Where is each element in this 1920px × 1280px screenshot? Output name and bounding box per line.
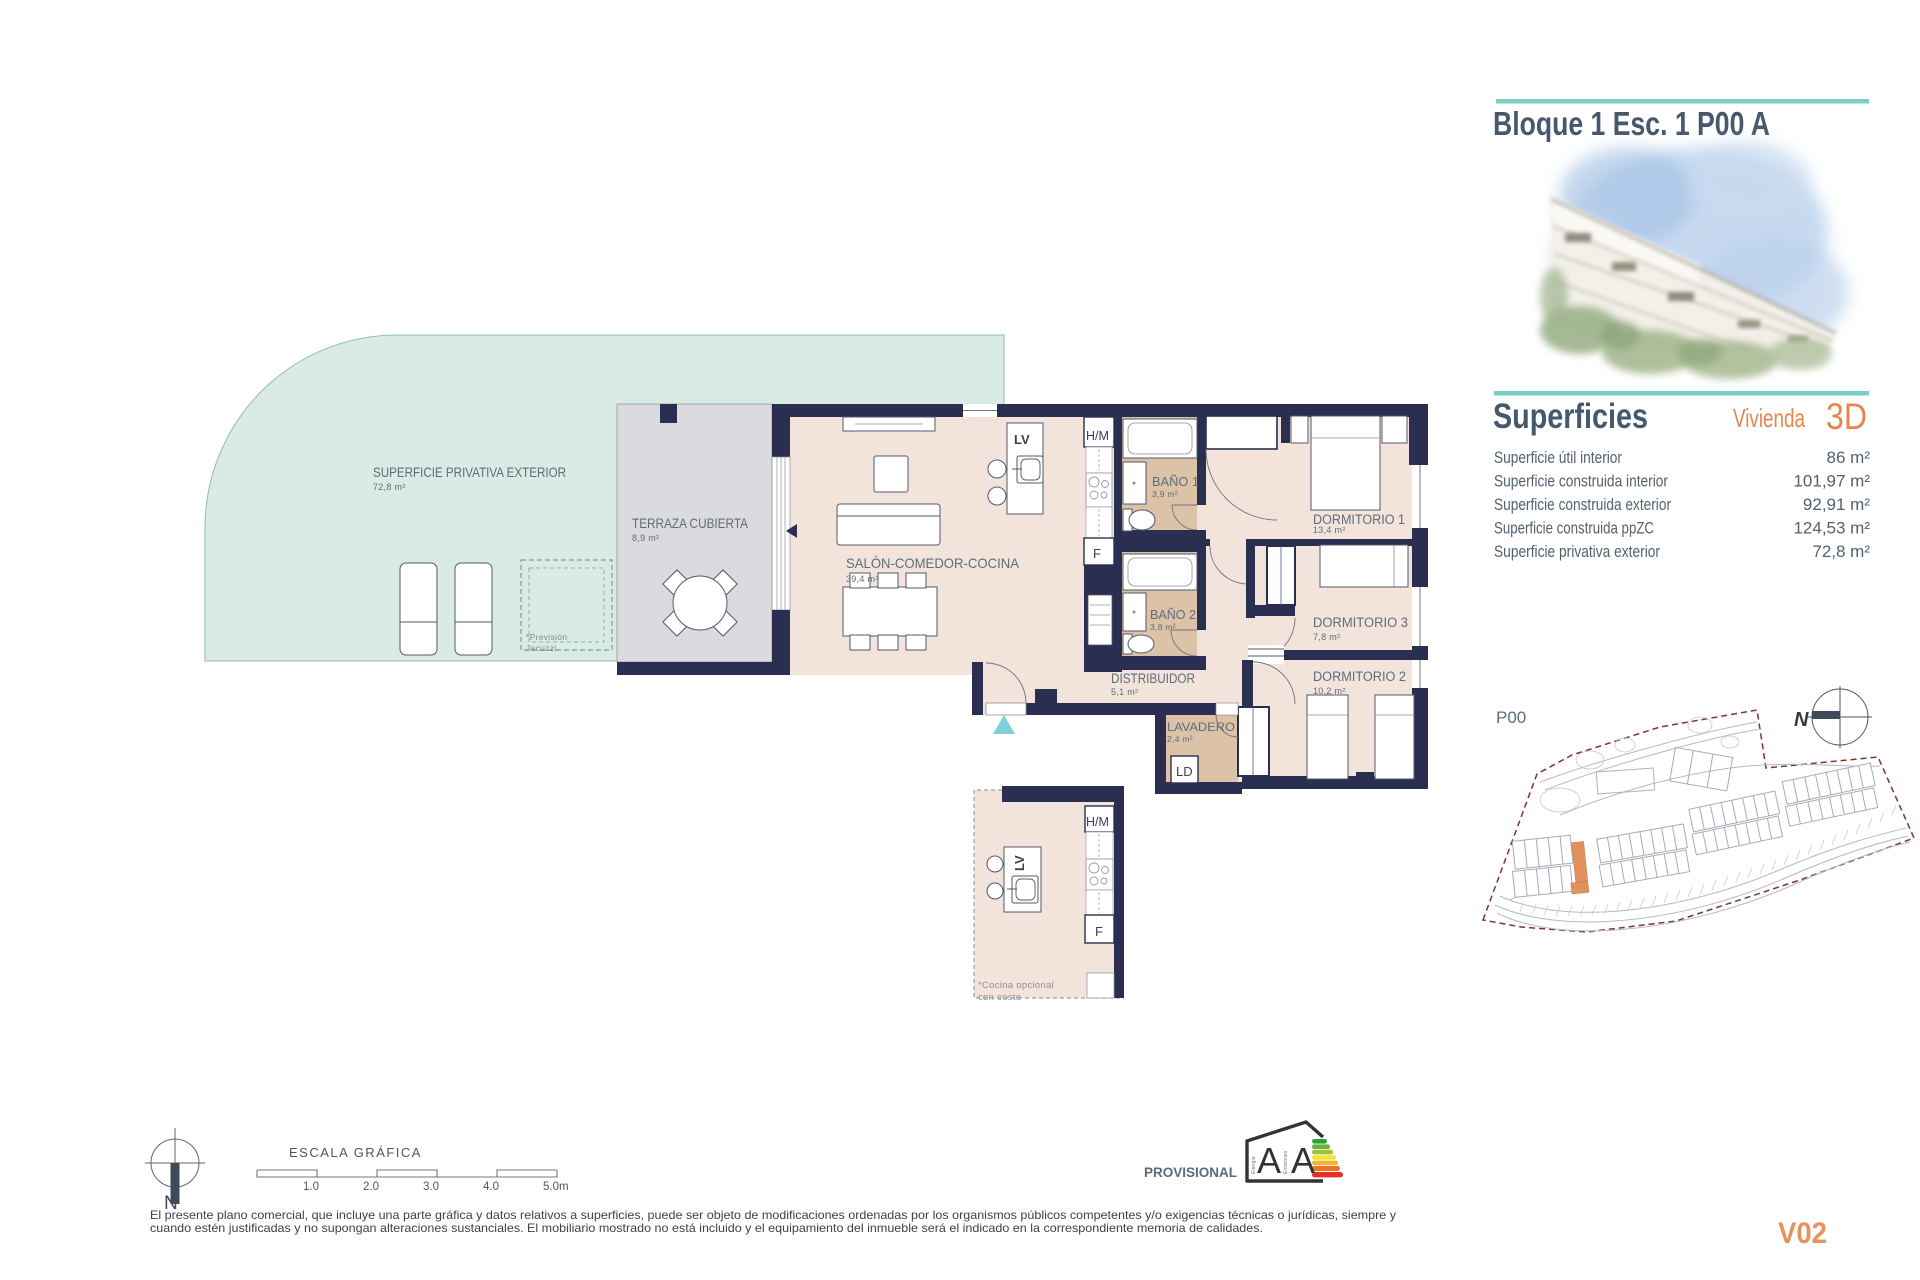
svg-text:SUPERFICIE PRIVATIVA EXTERIOR: SUPERFICIE PRIVATIVA EXTERIOR (373, 464, 566, 480)
svg-text:Superficie construida ppZC: Superficie construida ppZC (1494, 519, 1654, 538)
svg-text:5,1 m²: 5,1 m² (1111, 687, 1138, 697)
svg-text:*Previsión: *Previsión (526, 632, 567, 642)
svg-text:A: A (1257, 1140, 1281, 1181)
svg-text:cuando estén justificadas y no: cuando estén justificadas y no supongan … (150, 1221, 1263, 1235)
svg-text:BAÑO 1: BAÑO 1 (1152, 475, 1199, 489)
svg-text:BAÑO 2: BAÑO 2 (1150, 608, 1196, 622)
svg-text:2,4 m²: 2,4 m² (1167, 734, 1193, 744)
svg-text:H/M: H/M (1086, 429, 1109, 443)
svg-text:LD: LD (1176, 764, 1193, 779)
svg-text:72,8 m²: 72,8 m² (373, 482, 406, 492)
svg-text:3.0: 3.0 (423, 1181, 439, 1193)
svg-text:P00: P00 (1496, 708, 1526, 727)
svg-text:LV: LV (1014, 432, 1030, 447)
svg-text:Superficies: Superficies (1493, 397, 1648, 436)
svg-text:Superficie privativa exterior: Superficie privativa exterior (1494, 542, 1660, 561)
svg-text:A: A (1291, 1140, 1315, 1181)
svg-text:Vivienda: Vivienda (1733, 403, 1805, 433)
svg-text:5.0m: 5.0m (543, 1181, 569, 1193)
svg-text:LAVADERO: LAVADERO (1167, 720, 1235, 734)
svg-text:72,8 m²: 72,8 m² (1812, 542, 1870, 561)
svg-text:Energía: Energía (1251, 1156, 1257, 1174)
svg-text:ESCALA GRÁFICA: ESCALA GRÁFICA (289, 1145, 422, 1160)
svg-text:3D: 3D (1826, 396, 1867, 437)
svg-text:V02: V02 (1778, 1217, 1827, 1250)
svg-text:PROVISIONAL: PROVISIONAL (1144, 1164, 1237, 1180)
svg-text:10,2 m²: 10,2 m² (1313, 686, 1346, 696)
svg-text:3,9 m²: 3,9 m² (1152, 489, 1178, 499)
svg-text:LV: LV (1012, 855, 1027, 871)
svg-text:101,97 m²: 101,97 m² (1793, 472, 1870, 491)
svg-text:Superficie útil interior: Superficie útil interior (1494, 448, 1622, 467)
svg-text:86 m²: 86 m² (1827, 448, 1871, 467)
svg-text:H/M: H/M (1086, 815, 1109, 829)
svg-text:13,4 m²: 13,4 m² (1313, 525, 1346, 535)
svg-text:8,9 m²: 8,9 m² (632, 533, 659, 543)
svg-text:Bloque 1 Esc. 1 P00 A: Bloque 1 Esc. 1 P00 A (1493, 105, 1770, 142)
svg-text:F: F (1095, 924, 1103, 939)
svg-text:Jacuzzi: Jacuzzi (526, 643, 556, 653)
svg-text:DISTRIBUIDOR: DISTRIBUIDOR (1111, 671, 1195, 686)
svg-text:Superficie construida interior: Superficie construida interior (1494, 472, 1668, 491)
svg-text:7,8 m²: 7,8 m² (1313, 632, 1340, 642)
svg-text:N: N (1794, 709, 1809, 731)
svg-text:El presente plano comercial, q: El presente plano comercial, que incluye… (150, 1208, 1396, 1222)
svg-text:TERRAZA CUBIERTA: TERRAZA CUBIERTA (632, 515, 749, 531)
svg-text:F: F (1093, 546, 1101, 561)
svg-text:DORMITORIO 2: DORMITORIO 2 (1313, 669, 1406, 684)
svg-text:124,53 m²: 124,53 m² (1793, 519, 1870, 538)
svg-text:*Cocina opcional: *Cocina opcional (978, 980, 1054, 991)
svg-text:39,4 m²: 39,4 m² (846, 574, 879, 584)
svg-text:4.0: 4.0 (483, 1181, 499, 1193)
svg-text:3,8 m²: 3,8 m² (1150, 622, 1176, 632)
svg-text:con coste: con coste (978, 992, 1021, 1003)
svg-text:1.0: 1.0 (303, 1181, 319, 1193)
svg-text:Emisiones: Emisiones (1283, 1150, 1289, 1174)
svg-text:2.0: 2.0 (363, 1181, 379, 1193)
svg-text:SALÓN-COMEDOR-COCINA: SALÓN-COMEDOR-COCINA (846, 555, 1020, 571)
svg-text:Superficie construida exterior: Superficie construida exterior (1494, 495, 1671, 514)
svg-text:DORMITORIO 3: DORMITORIO 3 (1313, 615, 1408, 630)
svg-text:92,91 m²: 92,91 m² (1803, 495, 1870, 514)
